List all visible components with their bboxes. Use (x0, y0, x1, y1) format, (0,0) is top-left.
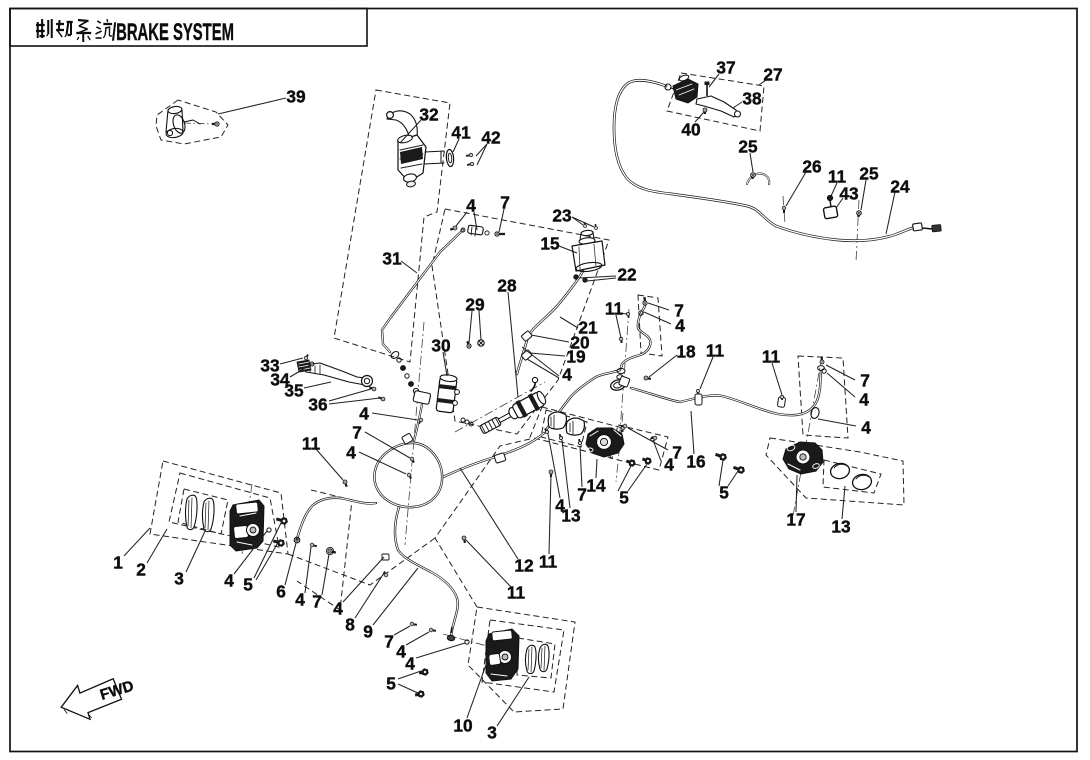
svg-text:7: 7 (860, 370, 870, 390)
svg-text:11: 11 (762, 346, 781, 366)
svg-text:10: 10 (453, 715, 472, 735)
svg-text:11: 11 (605, 298, 624, 318)
svg-text:4: 4 (346, 442, 356, 462)
svg-text:12: 12 (514, 555, 533, 575)
svg-text:9: 9 (363, 621, 373, 641)
svg-text:4: 4 (562, 364, 572, 384)
svg-text:18: 18 (676, 341, 696, 361)
svg-text:6: 6 (276, 581, 286, 601)
svg-text:17: 17 (786, 509, 805, 529)
svg-text:5: 5 (619, 487, 629, 507)
svg-text:4: 4 (466, 195, 476, 215)
svg-text:14: 14 (586, 475, 606, 495)
svg-text:4: 4 (359, 403, 369, 423)
svg-text:5: 5 (719, 482, 729, 502)
svg-text:7: 7 (384, 631, 394, 651)
svg-text:30: 30 (431, 335, 450, 355)
svg-text:7: 7 (312, 591, 322, 611)
svg-text:41: 41 (451, 122, 471, 142)
svg-text:11: 11 (302, 433, 321, 453)
svg-text:39: 39 (286, 86, 305, 106)
svg-text:7: 7 (672, 442, 682, 462)
svg-text:19: 19 (566, 346, 585, 366)
svg-text:7: 7 (500, 192, 510, 212)
svg-text:4: 4 (224, 570, 234, 590)
svg-text:8: 8 (345, 614, 355, 634)
svg-text:38: 38 (742, 88, 762, 108)
svg-text:15: 15 (540, 233, 560, 253)
svg-text:4: 4 (405, 653, 415, 673)
svg-text:4: 4 (859, 389, 869, 409)
svg-text:4: 4 (295, 589, 305, 609)
svg-text:5: 5 (243, 574, 253, 594)
svg-text:3: 3 (487, 722, 497, 742)
svg-text:4: 4 (861, 417, 871, 437)
svg-text:25: 25 (738, 136, 758, 156)
svg-text:40: 40 (681, 119, 700, 139)
svg-text:/BRAKE SYSTEM: /BRAKE SYSTEM (112, 19, 234, 46)
svg-text:4: 4 (333, 598, 343, 618)
svg-text:31: 31 (382, 248, 402, 268)
svg-text:32: 32 (419, 104, 438, 124)
svg-text:35: 35 (284, 380, 304, 400)
svg-text:11: 11 (706, 340, 725, 360)
svg-text:24: 24 (890, 176, 910, 196)
svg-text:13: 13 (561, 505, 580, 525)
svg-text:42: 42 (481, 127, 500, 147)
svg-text:27: 27 (763, 64, 782, 84)
svg-text:5: 5 (386, 673, 396, 693)
svg-text:23: 23 (552, 205, 571, 225)
svg-text:1: 1 (113, 552, 123, 572)
svg-text:28: 28 (497, 275, 517, 295)
svg-text:43: 43 (839, 183, 858, 203)
svg-text:29: 29 (465, 294, 484, 314)
svg-text:25: 25 (859, 163, 879, 183)
svg-text:2: 2 (136, 559, 146, 579)
svg-text:16: 16 (686, 451, 705, 471)
svg-text:26: 26 (802, 156, 821, 176)
svg-text:36: 36 (308, 394, 327, 414)
svg-text:3: 3 (174, 568, 184, 588)
svg-text:13: 13 (831, 516, 850, 536)
svg-text:4: 4 (675, 315, 685, 335)
svg-text:37: 37 (716, 57, 735, 77)
svg-text:11: 11 (507, 582, 526, 602)
svg-text:7: 7 (352, 422, 362, 442)
svg-text:22: 22 (617, 264, 636, 284)
svg-text:11: 11 (539, 551, 558, 571)
svg-text:7: 7 (577, 484, 587, 504)
